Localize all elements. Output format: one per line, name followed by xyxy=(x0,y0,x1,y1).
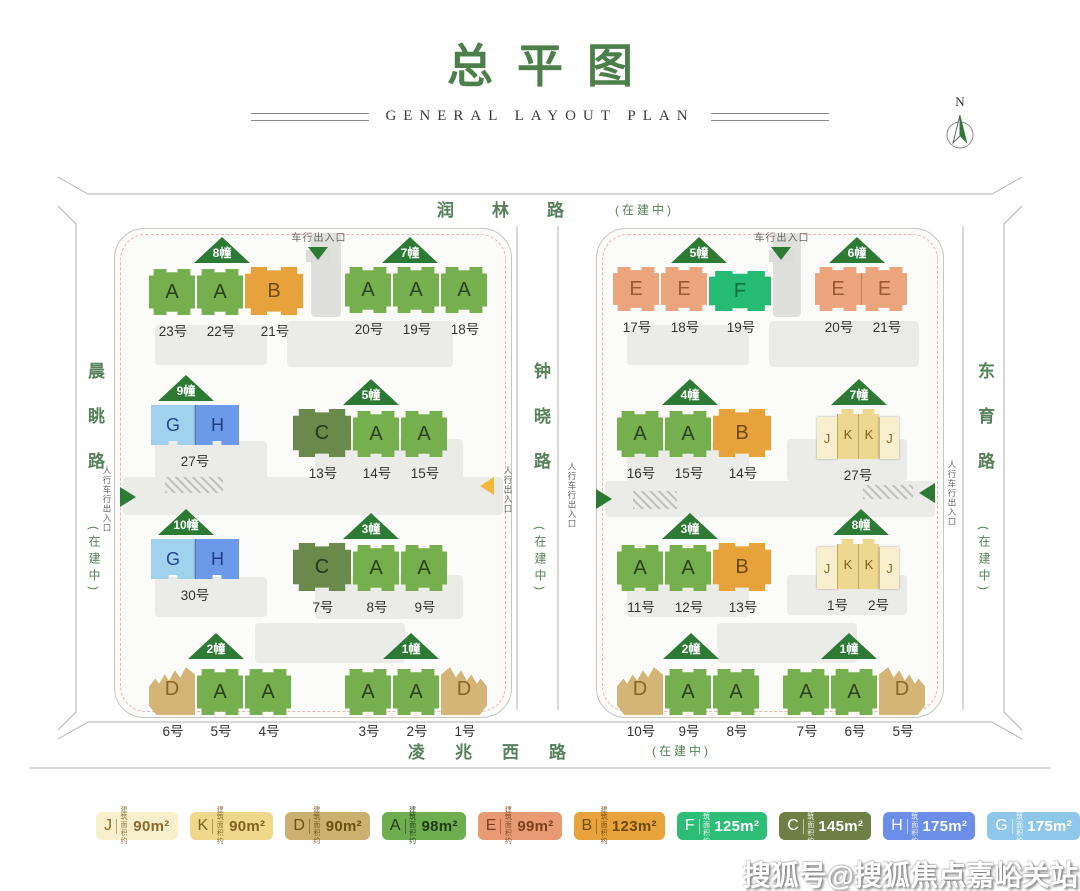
building-unit-j: J xyxy=(879,417,899,459)
building-unit-a: A xyxy=(665,545,711,591)
building-unit-k: K xyxy=(837,409,858,459)
unit-number: 7号 xyxy=(293,596,353,616)
unit-numbers-row: 11号12号13号 xyxy=(617,596,773,616)
road-label-middle: 钟晓路 xyxy=(528,362,553,497)
building-unit-d: D xyxy=(441,663,487,715)
legend-area-label-bottom: 面积约 xyxy=(807,822,816,845)
unit-letter: J xyxy=(824,561,831,576)
legend-area-label: 建 筑面积约 xyxy=(217,807,227,845)
building-marker: 8幢 xyxy=(833,509,889,535)
building-group: 8幢AAB23号22号21号 xyxy=(149,237,305,340)
subtitle-rule-right xyxy=(711,113,829,121)
building-units-row: EE xyxy=(815,267,911,311)
building-group: 10幢GH30号 xyxy=(151,509,239,604)
legend-area-label: 建 筑面积约 xyxy=(911,807,920,845)
unit-letter: G xyxy=(166,415,180,436)
building-unit-b: B xyxy=(713,409,771,457)
unit-letter: D xyxy=(165,678,179,701)
unit-letter: A xyxy=(633,557,646,580)
unit-numbers-row: 20号21号 xyxy=(815,316,911,336)
unit-number: 27号 xyxy=(817,464,899,484)
legend-area-label: 建 筑面积约 xyxy=(703,807,712,845)
legend-area-label-bottom: 面积约 xyxy=(505,822,515,845)
unit-letter: D xyxy=(457,678,471,701)
legend-item: J建 筑面积约90m² xyxy=(96,812,178,840)
building-unit-j: J xyxy=(817,417,837,459)
legend-area-label: 建 筑面积约 xyxy=(313,807,323,845)
building-marker: 6幢 xyxy=(829,237,885,263)
unit-number: 17号 xyxy=(613,316,661,336)
subtitle-rule-left xyxy=(251,113,369,121)
building-marker: 2幢 xyxy=(663,633,719,659)
unit-letter: E xyxy=(831,278,844,301)
building-group: 2幢DAA6号5号4号 xyxy=(149,633,293,740)
unit-letter: D xyxy=(633,678,647,701)
building-group: 1幢AAD7号6号5号 xyxy=(783,633,927,740)
compound-right: 5幢EEF17号18号19号6幢EE20号21号4幢AAB16号15号14号7幢… xyxy=(596,228,944,718)
building-unit-f: F xyxy=(709,271,771,311)
building-unit-e: E xyxy=(861,267,907,311)
building-group: 5幢CAA13号14号15号 xyxy=(293,379,449,482)
unit-letter: J xyxy=(886,561,893,576)
legend-divider xyxy=(116,819,117,834)
unit-number: 8号 xyxy=(713,720,761,740)
building-group: 4幢AAB16号15号14号 xyxy=(617,379,773,482)
unit-numbers-row: 20号19号18号 xyxy=(345,318,489,338)
building-units-row: EEF xyxy=(613,267,773,311)
legend-area-label-top: 建 筑 xyxy=(1016,807,1025,822)
site-block xyxy=(773,233,801,317)
unit-number: 10号 xyxy=(617,720,665,740)
road-status-top: (在建中) xyxy=(615,201,674,218)
building-marker: 2幢 xyxy=(188,633,244,659)
building-group: 7幢JKKJ27号 xyxy=(817,379,899,484)
legend-item: C建 筑面积约145m² xyxy=(779,812,871,840)
legend-area-label-top: 建 筑 xyxy=(313,807,323,822)
building-units-row: AAB xyxy=(149,267,305,315)
legend-area-label-bottom: 面积约 xyxy=(911,822,920,845)
unit-letter: J xyxy=(824,431,831,446)
unit-numbers-row: 27号 xyxy=(151,450,239,470)
building-units-row: GH xyxy=(151,405,239,445)
compound-left: 8幢AAB23号22号21号7幢AAA20号19号18号9幢GH27号5幢CAA… xyxy=(114,228,512,718)
building-unit-k: K xyxy=(858,539,879,589)
legend-area-label-top: 建 筑 xyxy=(703,807,712,822)
unit-number: 4号 xyxy=(245,720,293,740)
unit-number: 30号 xyxy=(151,584,239,604)
unit-number: 9号 xyxy=(401,596,449,616)
road-status-right: (在建中) xyxy=(976,526,993,595)
unit-letter: H xyxy=(211,415,224,436)
legend-item: K建 筑面积约90m² xyxy=(190,812,274,840)
building-marker: 9幢 xyxy=(158,375,214,401)
building-marker: 5幢 xyxy=(671,237,727,263)
building-units-row: CAA xyxy=(293,543,449,591)
building-group: 5幢EEF17号18号19号 xyxy=(613,237,773,336)
unit-letter: D xyxy=(895,678,909,701)
unit-numbers-row: 6号5号4号 xyxy=(149,720,293,740)
unit-numbers-row: 7号8号9号 xyxy=(293,596,449,616)
unit-number: 21号 xyxy=(245,320,305,340)
unit-letter: B xyxy=(735,556,748,579)
unit-number: 18号 xyxy=(661,316,709,336)
building-units-row: JKKJ xyxy=(817,409,899,459)
building-group: 9幢GH27号 xyxy=(151,375,239,470)
unit-letter: A xyxy=(361,279,374,302)
unit-letter: A xyxy=(847,681,860,704)
building-unit-b: B xyxy=(245,267,303,315)
unit-number: 14号 xyxy=(713,462,773,482)
legend-letter: F xyxy=(685,817,695,835)
north-label: N xyxy=(938,94,982,110)
page-subtitle: GENERAL LAYOUT PLAN xyxy=(385,108,694,125)
building-group: 6幢EE20号21号 xyxy=(815,237,911,336)
crosswalk-hatch xyxy=(165,477,223,493)
unit-number: 20号 xyxy=(345,318,393,338)
entrance-label-ped-middle: 人行出入口 xyxy=(502,466,514,514)
north-indicator: N xyxy=(938,94,982,158)
building-unit-c: C xyxy=(293,543,351,591)
unit-number: 23号 xyxy=(149,320,197,340)
unit-letter: A xyxy=(369,557,382,580)
building-unit-a: A xyxy=(665,669,711,715)
entrance-label-middle-east: 人行车行出入口 xyxy=(566,462,578,529)
unit-letter: A xyxy=(633,423,646,446)
building-unit-g: G xyxy=(151,539,195,579)
building-unit-a: A xyxy=(353,545,399,591)
unit-number: 6号 xyxy=(831,720,879,740)
building-unit-e: E xyxy=(815,267,861,311)
unit-numbers-row: 17号18号19号 xyxy=(613,316,773,336)
legend-area-label-bottom: 面积约 xyxy=(601,822,610,845)
building-unit-a: A xyxy=(197,669,243,715)
unit-letter: A xyxy=(417,423,430,446)
building-group: 3幢CAA7号8号9号 xyxy=(293,513,449,616)
watermark: 搜狐号@搜狐焦点嘉峪关站 xyxy=(743,854,1078,891)
unit-letter: J xyxy=(886,431,893,446)
legend-area-value: 125m² xyxy=(714,818,759,835)
legend-area-label-top: 建 筑 xyxy=(911,807,920,822)
building-group: 8幢JKKJ1号2号 xyxy=(817,509,899,614)
building-unit-a: A xyxy=(393,267,439,313)
unit-number: 20号 xyxy=(815,316,863,336)
unit-letter: A xyxy=(261,681,274,704)
legend-area-label: 建 筑面积约 xyxy=(505,807,515,845)
unit-number: 11号 xyxy=(617,596,665,616)
unit-number: 7号 xyxy=(783,720,831,740)
building-marker: 1幢 xyxy=(821,633,877,659)
building-group: 1幢AAD3号2号1号 xyxy=(345,633,489,740)
unit-letter: C xyxy=(315,556,329,579)
unit-letter: A xyxy=(165,281,178,304)
entrance-label-vehicle-right: 车行出入口 xyxy=(739,229,825,244)
building-unit-a: A xyxy=(401,545,447,591)
building-unit-a: A xyxy=(245,669,291,715)
unit-number: 1号 xyxy=(441,720,489,740)
unit-number: 9号 xyxy=(665,720,713,740)
page-title: 总平图 xyxy=(0,30,1080,96)
unit-number: 14号 xyxy=(353,462,401,482)
building-unit-a: A xyxy=(713,669,759,715)
unit-numbers-row: 30号 xyxy=(151,584,239,604)
unit-letter: A xyxy=(681,681,694,704)
legend-area-label: 建 筑面积约 xyxy=(1016,807,1025,845)
building-marker: 4幢 xyxy=(662,379,718,405)
legend-area-value: 90m² xyxy=(326,818,362,835)
unit-number: 8号 xyxy=(353,596,401,616)
building-unit-a: A xyxy=(149,269,195,315)
entrance-label-west: 人行车行出入口 xyxy=(101,466,113,533)
unit-letter: A xyxy=(457,279,470,302)
legend-divider xyxy=(405,819,406,834)
legend-area-value: 90m² xyxy=(133,818,169,835)
legend-area-label-top: 建 筑 xyxy=(807,807,816,822)
building-marker: 1幢 xyxy=(383,633,439,659)
unit-numbers-row: 1号2号 xyxy=(817,594,899,614)
legend-divider xyxy=(500,819,501,834)
unit-letter: B xyxy=(267,280,280,303)
layout-plan-page: 总平图 GENERAL LAYOUT PLAN N xyxy=(0,0,1080,891)
legend-letter: C xyxy=(787,817,799,835)
building-unit-a: A xyxy=(617,411,663,457)
building-group: 3幢AAB11号12号13号 xyxy=(617,513,773,616)
legend-letter: D xyxy=(293,817,305,835)
building-unit-a: A xyxy=(441,267,487,313)
legend-letter: B xyxy=(582,817,593,835)
road-label-top: 润林路 xyxy=(437,196,602,221)
entrance-label-east: 人行车行出入口 xyxy=(946,460,958,527)
unit-letter: A xyxy=(369,423,382,446)
building-unit-d: D xyxy=(149,663,195,715)
unit-number: 2号 xyxy=(858,594,899,614)
building-unit-k: K xyxy=(858,409,879,459)
unit-numbers-row: 23号22号21号 xyxy=(149,320,305,340)
unit-number: 13号 xyxy=(293,462,353,482)
unit-letter: E xyxy=(629,278,642,301)
unit-letter: B xyxy=(735,422,748,445)
unit-number: 22号 xyxy=(197,320,245,340)
legend-area-label-top: 建 筑 xyxy=(217,807,227,822)
building-marker: 3幢 xyxy=(662,513,718,539)
legend-letter: E xyxy=(486,817,497,835)
building-units-row: AAD xyxy=(345,663,489,715)
unit-numbers-row: 7号6号5号 xyxy=(783,720,927,740)
road-status-left: (在建中) xyxy=(86,526,103,595)
building-unit-e: E xyxy=(661,267,707,311)
legend-divider xyxy=(212,819,213,834)
unit-letter: G xyxy=(166,549,180,570)
legend-item: G建 筑面积约175m² xyxy=(987,812,1080,840)
unit-letter: A xyxy=(681,557,694,580)
building-units-row: JKKJ xyxy=(817,539,899,589)
building-unit-a: A xyxy=(353,411,399,457)
building-units-row: DAA xyxy=(617,663,761,715)
building-units-row: CAA xyxy=(293,409,449,457)
legend-area-label: 建 筑面积约 xyxy=(601,807,610,845)
unit-number: 18号 xyxy=(441,318,489,338)
legend-area-label: 建 筑面积约 xyxy=(121,807,132,845)
building-group: 2幢DAA10号9号8号 xyxy=(617,633,761,740)
unit-letter: A xyxy=(729,681,742,704)
legend-area-label-bottom: 面积约 xyxy=(409,822,419,845)
unit-letter: A xyxy=(213,681,226,704)
unit-letter: K xyxy=(865,427,874,442)
road-label-bottom: 凌兆西路 xyxy=(408,738,596,763)
building-marker: 7幢 xyxy=(831,379,887,405)
unit-number: 3号 xyxy=(345,720,393,740)
legend-letter: J xyxy=(104,817,112,835)
building-unit-j: J xyxy=(817,547,837,589)
building-unit-a: A xyxy=(345,267,391,313)
unit-number: 16号 xyxy=(617,462,665,482)
building-unit-j: J xyxy=(879,547,899,589)
building-unit-a: A xyxy=(401,411,447,457)
legend-area-value: 123m² xyxy=(612,818,657,835)
building-unit-a: A xyxy=(393,669,439,715)
unit-number: 1号 xyxy=(817,594,858,614)
building-units-row: AAD xyxy=(783,663,927,715)
building-marker: 8幢 xyxy=(194,237,250,263)
legend-area-value: 175m² xyxy=(922,818,967,835)
building-units-row: DAA xyxy=(149,663,293,715)
unit-numbers-row: 27号 xyxy=(817,464,899,484)
crosswalk-hatch xyxy=(863,485,913,499)
unit-number: 5号 xyxy=(879,720,927,740)
legend-area-value: 98m² xyxy=(422,818,458,835)
legend-area-label: 建 筑面积约 xyxy=(807,807,816,845)
unit-number: 15号 xyxy=(401,462,449,482)
unit-number: 27号 xyxy=(151,450,239,470)
building-unit-a: A xyxy=(197,269,243,315)
unit-letter: A xyxy=(799,681,812,704)
legend-area-label-bottom: 面积约 xyxy=(217,822,227,845)
building-marker: 5幢 xyxy=(343,379,399,405)
road-status-middle: (在建中) xyxy=(532,526,549,595)
site-block xyxy=(311,233,341,317)
legend-area-label-top: 建 筑 xyxy=(121,807,132,822)
legend-item: E建 筑面积约99m² xyxy=(478,812,562,840)
unit-letter: H xyxy=(211,549,224,570)
unit-letter: K xyxy=(865,557,874,572)
building-marker: 10幢 xyxy=(158,509,214,535)
unit-number: 6号 xyxy=(149,720,197,740)
road-label-right: 东育路 xyxy=(972,362,997,497)
unit-letter: E xyxy=(677,278,690,301)
building-unit-a: A xyxy=(831,669,877,715)
legend-area-label: 建 筑面积约 xyxy=(409,807,419,845)
unit-letter: E xyxy=(878,278,891,301)
building-marker: 3幢 xyxy=(343,513,399,539)
unit-letter: A xyxy=(409,681,422,704)
building-group: 7幢AAA20号19号18号 xyxy=(345,237,489,338)
unit-numbers-row: 10号9号8号 xyxy=(617,720,761,740)
legend-item: D建 筑面积约90m² xyxy=(285,812,370,840)
legend: J建 筑面积约90m²K建 筑面积约90m²D建 筑面积约90m²A建 筑面积约… xyxy=(96,812,1080,840)
unit-letter: F xyxy=(734,280,746,303)
legend-letter: H xyxy=(891,817,903,835)
unit-numbers-row: 16号15号14号 xyxy=(617,462,773,482)
building-unit-a: A xyxy=(617,545,663,591)
building-units-row: AAB xyxy=(617,409,773,457)
legend-area-value: 175m² xyxy=(1027,818,1072,835)
legend-area-value: 90m² xyxy=(229,818,265,835)
crosswalk-hatch xyxy=(633,491,677,509)
building-unit-a: A xyxy=(665,411,711,457)
legend-item: F建 筑面积约125m² xyxy=(677,812,767,840)
unit-letter: A xyxy=(213,281,226,304)
road-status-bottom: (在建中) xyxy=(652,742,711,759)
unit-number: 2号 xyxy=(393,720,441,740)
building-unit-c: C xyxy=(293,409,351,457)
legend-area-label-top: 建 筑 xyxy=(505,807,515,822)
legend-item: A建 筑面积约98m² xyxy=(382,812,466,840)
building-units-row: AAA xyxy=(345,267,489,313)
legend-letter: A xyxy=(390,817,401,835)
building-unit-e: E xyxy=(613,267,659,311)
building-unit-b: B xyxy=(713,543,771,591)
unit-number: 19号 xyxy=(393,318,441,338)
entrance-label-vehicle-left: 车行出入口 xyxy=(276,229,362,244)
compass-icon xyxy=(941,111,979,153)
unit-letter: A xyxy=(417,557,430,580)
building-unit-k: K xyxy=(837,539,858,589)
unit-letter: A xyxy=(681,423,694,446)
legend-item: H建 筑面积约175m² xyxy=(883,812,975,840)
building-units-row: GH xyxy=(151,539,239,579)
building-unit-a: A xyxy=(345,669,391,715)
unit-letter: A xyxy=(361,681,374,704)
legend-area-value: 99m² xyxy=(517,818,553,835)
legend-area-label-top: 建 筑 xyxy=(601,807,610,822)
unit-number: 5号 xyxy=(197,720,245,740)
unit-numbers-row: 13号14号15号 xyxy=(293,462,449,482)
unit-letter: C xyxy=(315,422,329,445)
building-unit-d: D xyxy=(617,663,663,715)
legend-letter: G xyxy=(995,817,1007,835)
legend-letter: K xyxy=(198,817,209,835)
building-unit-h: H xyxy=(195,539,239,579)
building-unit-h: H xyxy=(195,405,239,445)
unit-number: 21号 xyxy=(863,316,911,336)
unit-number: 15号 xyxy=(665,462,713,482)
legend-area-label-bottom: 面积约 xyxy=(703,822,712,845)
legend-item: B建 筑面积约123m² xyxy=(574,812,665,840)
legend-area-label-bottom: 面积约 xyxy=(1016,822,1025,845)
building-unit-g: G xyxy=(151,405,195,445)
building-unit-d: D xyxy=(879,663,925,715)
unit-number: 12号 xyxy=(665,596,713,616)
legend-area-label-top: 建 筑 xyxy=(409,807,419,822)
building-marker: 7幢 xyxy=(382,237,438,263)
unit-number: 19号 xyxy=(709,316,773,336)
page-subtitle-row: GENERAL LAYOUT PLAN xyxy=(0,108,1080,125)
unit-letter: A xyxy=(409,279,422,302)
unit-letter: K xyxy=(844,557,853,572)
building-units-row: AAB xyxy=(617,543,773,591)
unit-numbers-row: 3号2号1号 xyxy=(345,720,489,740)
legend-area-label-bottom: 面积约 xyxy=(121,822,132,845)
building-unit-a: A xyxy=(783,669,829,715)
legend-area-label-bottom: 面积约 xyxy=(313,822,323,845)
legend-area-value: 145m² xyxy=(818,818,863,835)
unit-letter: K xyxy=(844,427,853,442)
unit-number: 13号 xyxy=(713,596,773,616)
